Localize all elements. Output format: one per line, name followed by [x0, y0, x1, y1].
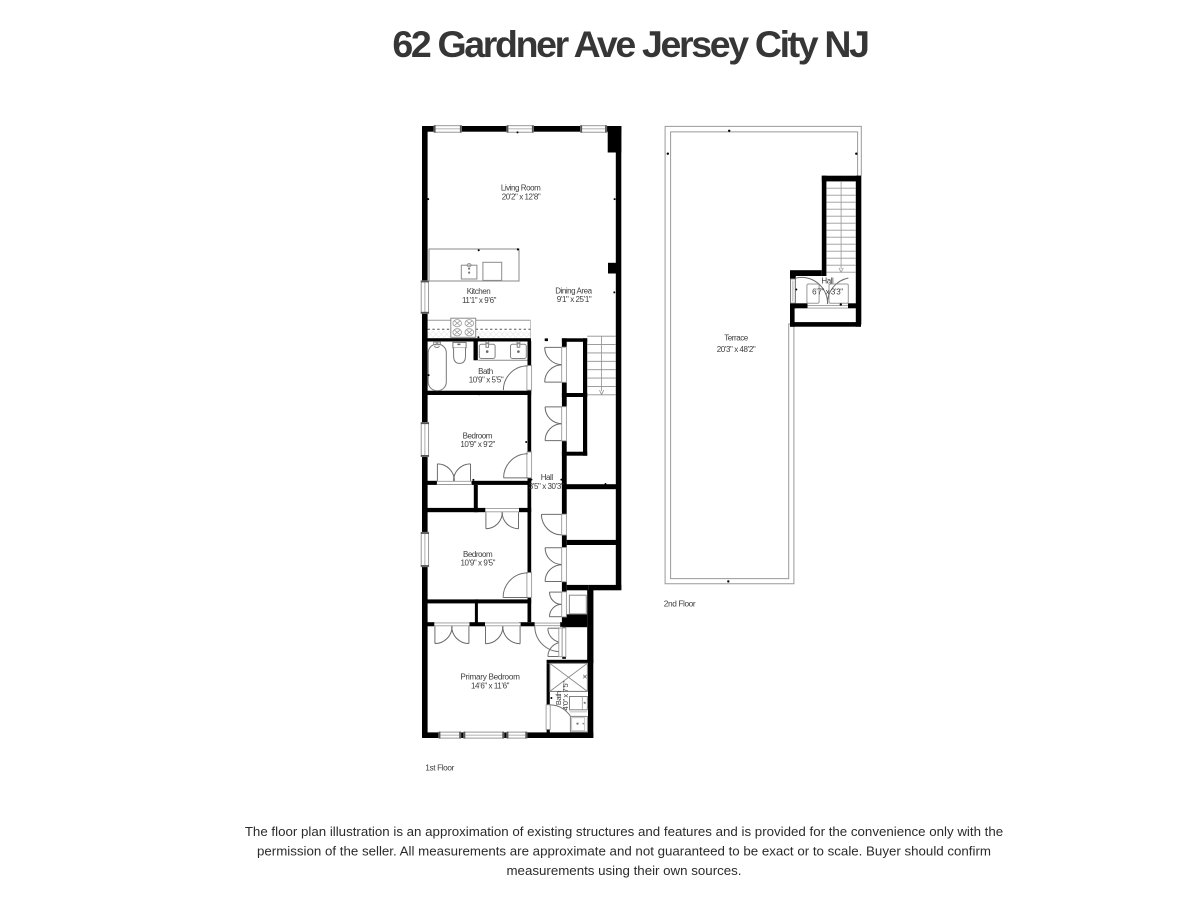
- svg-text:Hall: Hall: [821, 277, 834, 286]
- svg-text:Bedroom: Bedroom: [463, 432, 493, 441]
- svg-text:Kitchen: Kitchen: [467, 287, 491, 296]
- svg-text:20’3" x 48’2": 20’3" x 48’2": [717, 345, 756, 354]
- svg-text:Primary Bedroom: Primary Bedroom: [460, 672, 520, 681]
- svg-text:1st Floor: 1st Floor: [425, 762, 454, 772]
- svg-text:11’1" x 9’6": 11’1" x 9’6": [462, 296, 497, 305]
- svg-text:permission of the seller. All: permission of the seller. All measuremen…: [257, 844, 991, 859]
- svg-text:10’9" x 9’5": 10’9" x 9’5": [461, 558, 496, 567]
- svg-text:20’2" x 12’8": 20’2" x 12’8": [502, 192, 541, 201]
- svg-text:Hall: Hall: [541, 473, 554, 482]
- svg-text:10’9" x 5’5": 10’9" x 5’5": [469, 375, 504, 384]
- svg-text:4’0" x 7’5": 4’0" x 7’5": [561, 681, 570, 711]
- svg-text:2nd Floor: 2nd Floor: [664, 599, 696, 609]
- svg-text:Terrace: Terrace: [724, 333, 749, 342]
- svg-text:62 Gardner Ave Jersey City NJ: 62 Gardner Ave Jersey City NJ: [392, 23, 868, 65]
- svg-text:The floor plan illustration is: The floor plan illustration is an approx…: [245, 824, 1003, 839]
- svg-text:Living Room: Living Room: [501, 184, 541, 193]
- svg-text:10’9" x 9’2": 10’9" x 9’2": [460, 440, 495, 449]
- svg-text:14’6" x 11’6": 14’6" x 11’6": [471, 682, 510, 691]
- svg-text:6’7" x 3’3": 6’7" x 3’3": [812, 288, 843, 297]
- svg-text:9’1" x 25’1": 9’1" x 25’1": [557, 295, 592, 304]
- svg-text:3’5" x 30’3": 3’5" x 30’3": [529, 482, 564, 491]
- svg-text:measurements using their own s: measurements using their own sources.: [506, 863, 741, 878]
